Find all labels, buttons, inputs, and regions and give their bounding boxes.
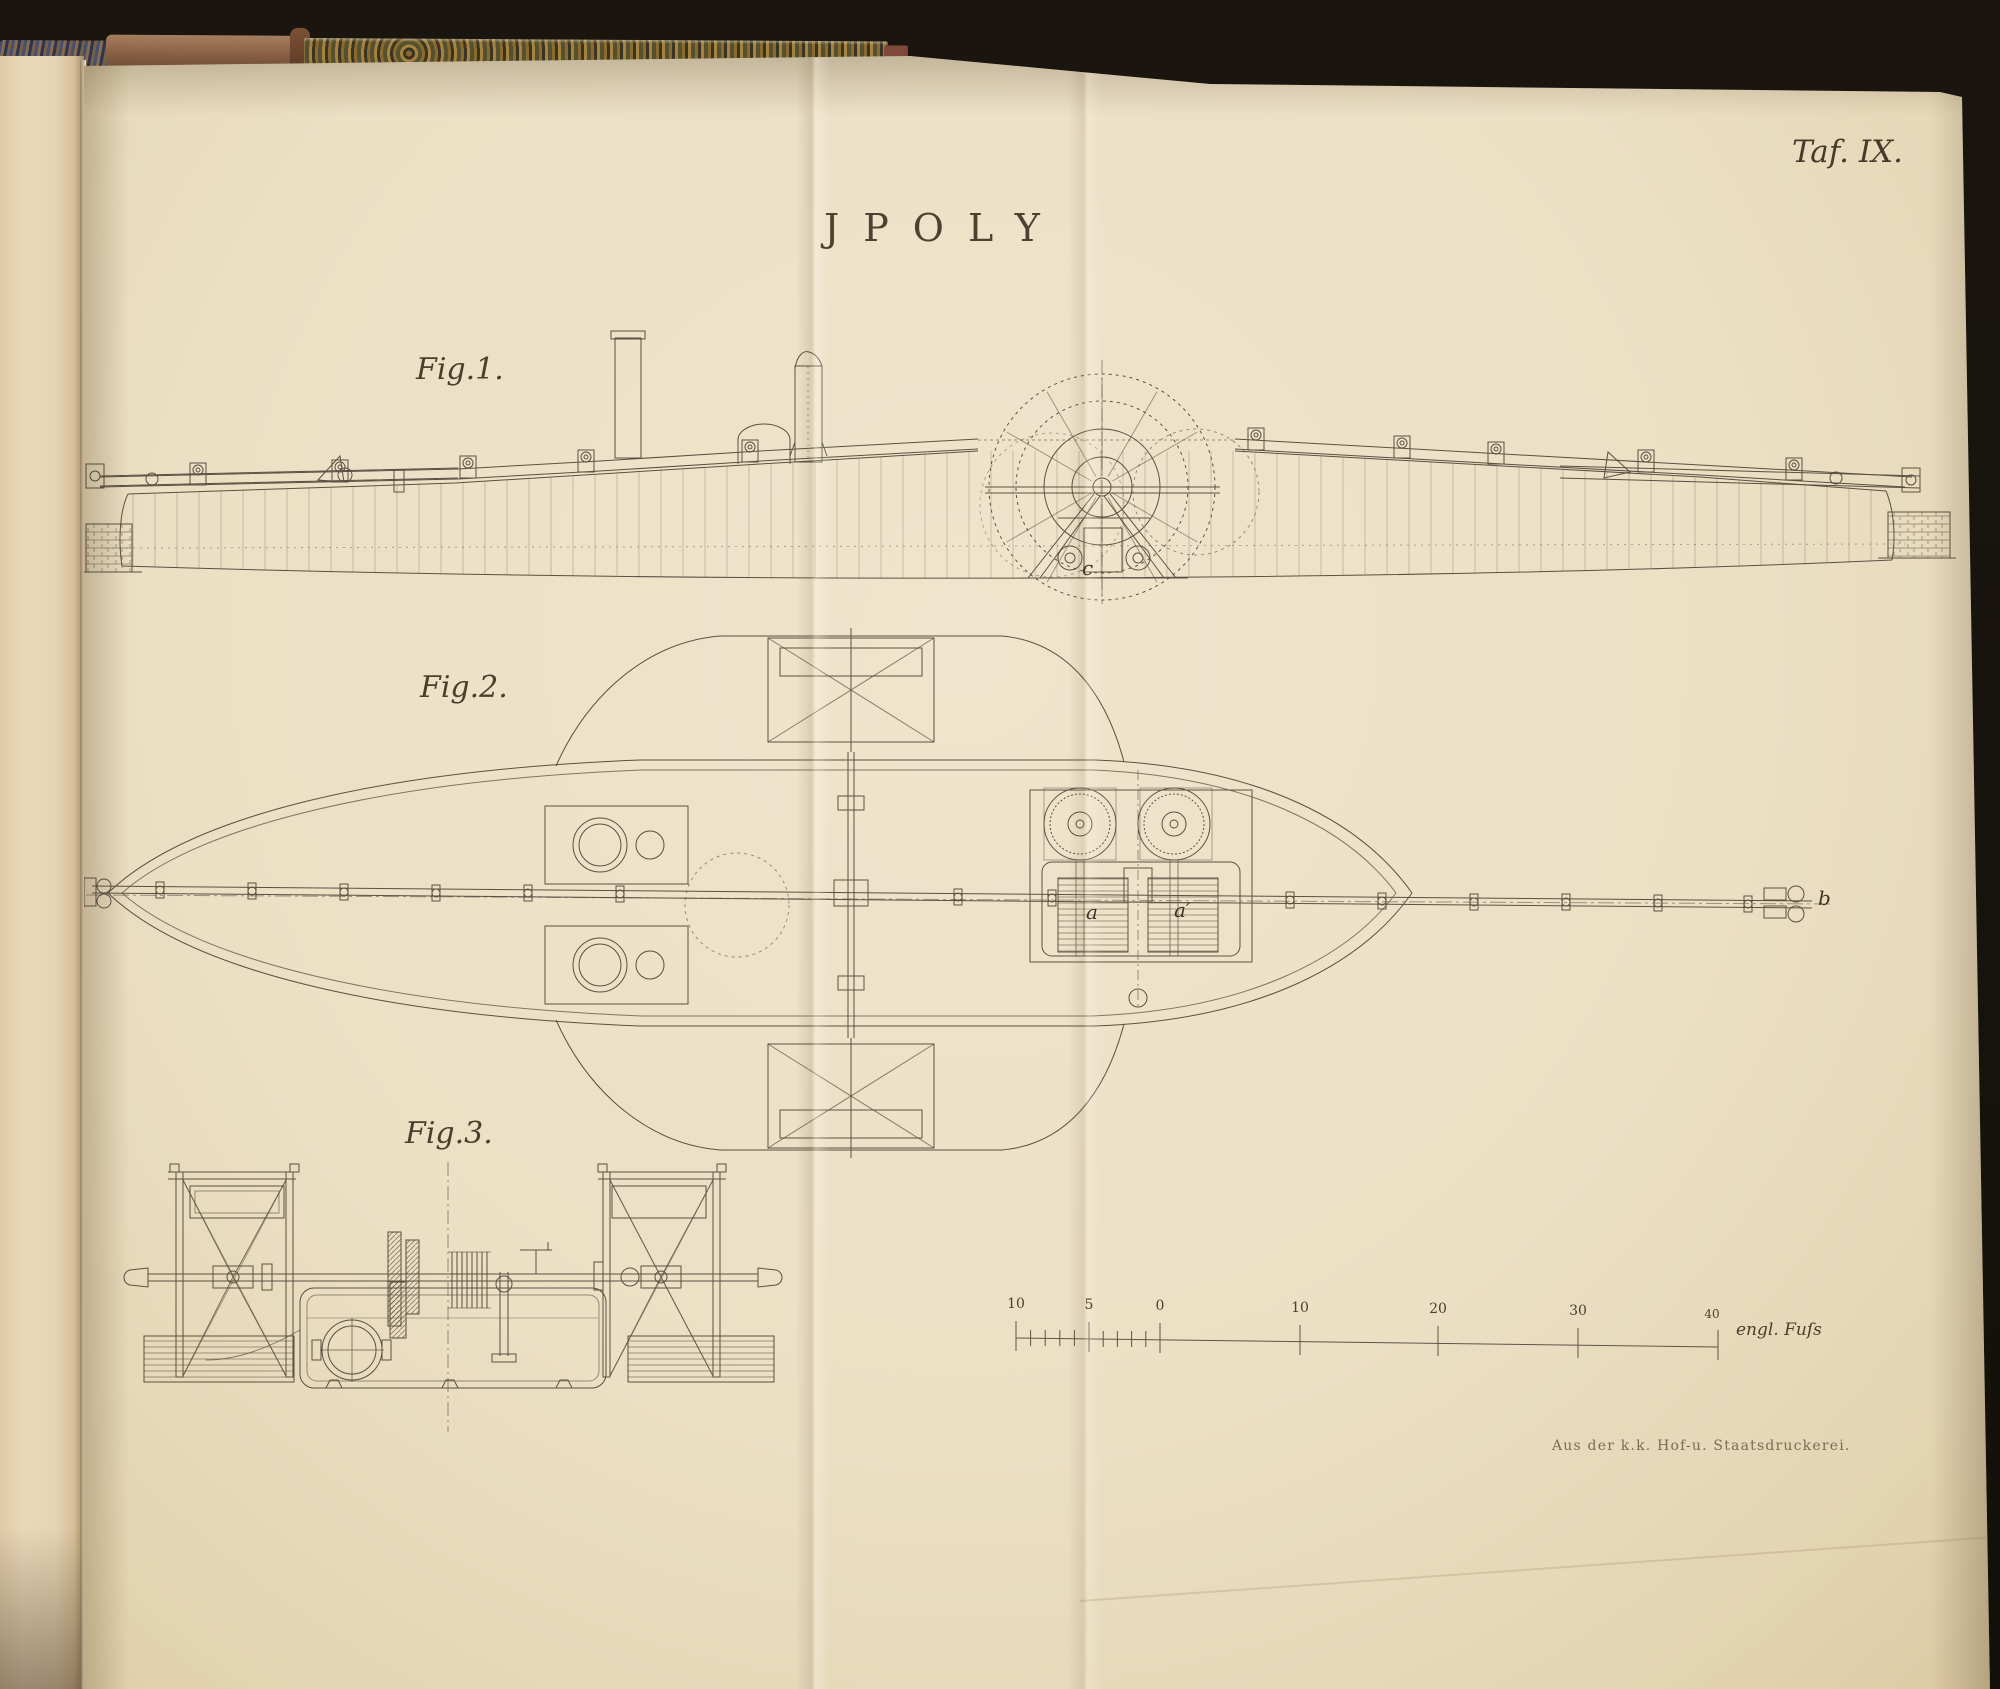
fig3-water-left xyxy=(144,1330,300,1382)
fig1-ventilator xyxy=(611,331,645,458)
scale-tick-label: 40 xyxy=(1692,1307,1732,1321)
scale-bar xyxy=(1016,1321,1718,1360)
fig3-boiler xyxy=(312,1318,391,1382)
fig1-label: Fig.1. xyxy=(416,352,504,387)
part-label-c: c xyxy=(1082,556,1093,580)
plate-title: JPOLY xyxy=(824,206,1064,250)
fig2-paddle-wheel-top xyxy=(768,628,934,752)
fig1-side-elevation xyxy=(80,331,1956,604)
printer-imprint: Aus der k.k. Hof-u. Staatsdruckerei. xyxy=(1552,1438,1851,1454)
fig2-label: Fig.2. xyxy=(420,670,508,705)
fig1-funnel xyxy=(790,352,827,462)
fig3-label: Fig.3. xyxy=(405,1116,493,1151)
scale-tick-label: 5 xyxy=(1069,1297,1109,1313)
scale-tick-label: 30 xyxy=(1558,1303,1598,1319)
part-label-a: a xyxy=(1086,900,1098,924)
scale-unit-label: engl. Fuſs xyxy=(1736,1320,1822,1340)
scanned-book-photo: Taf. IX. JPOLY Fig.1. Fig.2. Fig.3. a a′… xyxy=(0,0,2000,1689)
fig1-hull xyxy=(100,439,1912,578)
scale-tick-label: 10 xyxy=(1280,1300,1320,1316)
fig2-boilers xyxy=(545,806,789,1004)
page-left-stack xyxy=(0,56,84,1689)
spine-leather xyxy=(106,35,302,68)
fig2-machinery xyxy=(1030,770,1252,1010)
plate-number-label: Taf. IX. xyxy=(1792,134,1903,170)
plate-page: Taf. IX. JPOLY Fig.1. Fig.2. Fig.3. a a′… xyxy=(0,0,2000,1689)
scale-tick-label: 10 xyxy=(996,1296,1036,1312)
fig3-gear-train xyxy=(262,1232,639,1362)
scale-tick-label: 20 xyxy=(1418,1301,1458,1317)
fig2-paddle-wheel-bottom xyxy=(768,1038,934,1158)
fig2-center-spar xyxy=(84,878,1830,922)
fig3-cross-section xyxy=(124,1162,782,1432)
fig3-water-right xyxy=(628,1336,774,1382)
part-label-a-prime: a′ xyxy=(1174,898,1190,922)
fig2-paddle-axle xyxy=(834,752,868,1038)
fig2-plan-view xyxy=(84,628,1830,1158)
part-label-b: b xyxy=(1818,886,1831,910)
plate-drawing xyxy=(0,0,2000,1689)
scale-tick-label: 0 xyxy=(1140,1298,1180,1314)
